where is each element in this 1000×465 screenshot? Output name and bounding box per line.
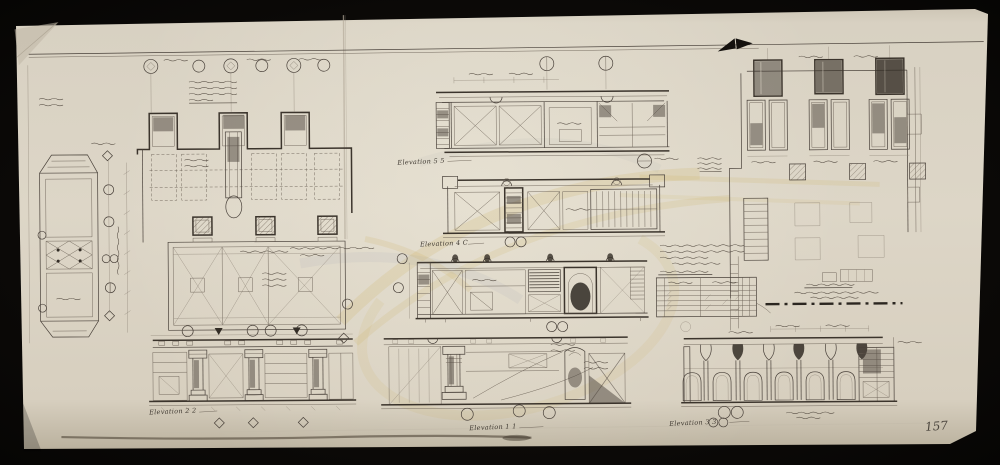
paper-creases	[14, 11, 941, 451]
caption-elevation-3-3: Elevation 3 3	[668, 418, 749, 428]
plan-right	[697, 58, 927, 331]
corner-fold	[15, 22, 59, 65]
caption-text: Elevation 3 3	[668, 418, 717, 428]
caption-elevation-1-1: Elevation 1 1	[468, 422, 543, 432]
photographed-blueprint-scene: Elevation 5 5	[0, 0, 1000, 465]
caption-text: Elevation 2 2	[148, 406, 197, 416]
turned-column	[309, 349, 327, 400]
caption-text: Elevation 4 C	[419, 239, 468, 249]
sheet-number: 157	[925, 418, 949, 434]
caption-elevation-2-2: Elevation 2 2	[148, 406, 308, 429]
caption-elevation-5-5: Elevation 5 5	[396, 157, 471, 167]
elevation-bottom-right	[681, 320, 923, 419]
dash-dot-line	[766, 303, 903, 304]
plan-main-left	[137, 112, 375, 337]
drawing-svg: Elevation 5 5	[0, 0, 1000, 465]
turned-column	[189, 350, 207, 401]
caption-text: Elevation 5 5	[396, 157, 445, 167]
floor-dash-line	[765, 269, 902, 304]
note-block-top	[39, 81, 237, 106]
plan-left-strip	[37, 155, 98, 337]
elevation-bottom-left	[149, 334, 357, 411]
turned-column	[442, 346, 466, 399]
caption-text: Elevation 1 1	[468, 422, 517, 432]
caption-elevation-4-c: Elevation 4 C	[419, 237, 526, 249]
elevation-top-center	[436, 76, 679, 170]
elevation-bottom-center	[338, 297, 631, 421]
turned-column	[245, 350, 263, 401]
left-symbol-column	[91, 143, 130, 333]
